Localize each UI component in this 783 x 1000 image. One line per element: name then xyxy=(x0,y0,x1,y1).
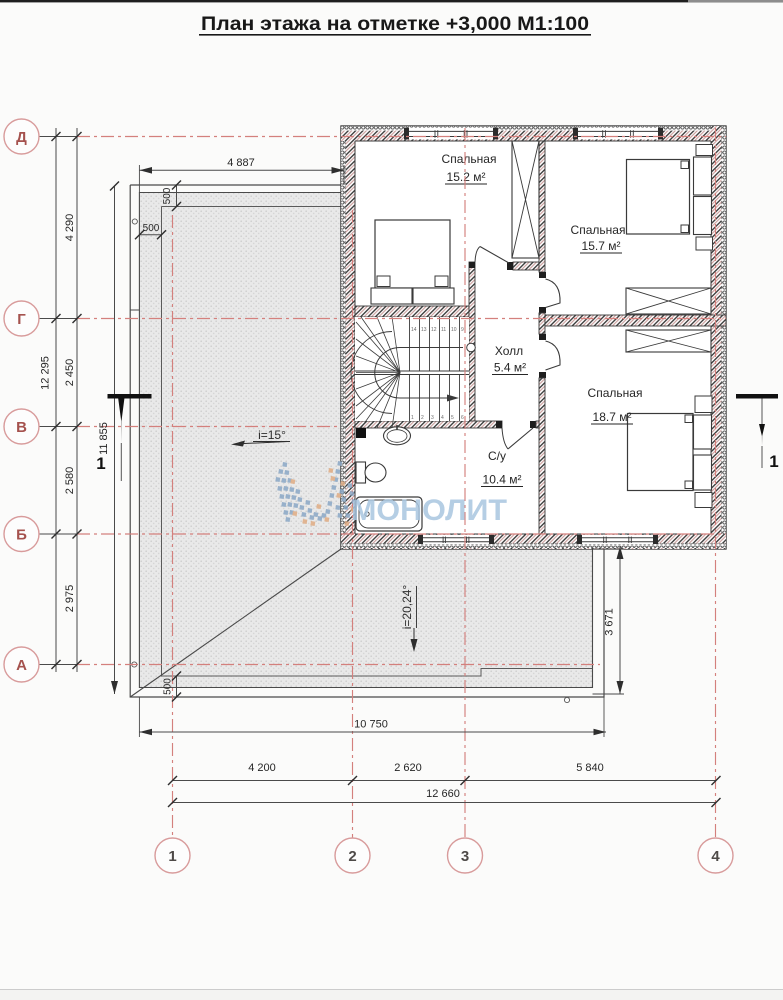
svg-text:В: В xyxy=(16,419,27,436)
svg-text:Спальная: Спальная xyxy=(588,386,643,400)
svg-text:11 855: 11 855 xyxy=(98,422,110,455)
svg-text:Спальная: Спальная xyxy=(442,152,497,166)
svg-text:1: 1 xyxy=(411,415,414,421)
svg-text:2 620: 2 620 xyxy=(394,762,422,774)
svg-text:10 750: 10 750 xyxy=(354,719,388,731)
svg-text:12: 12 xyxy=(431,327,437,333)
svg-text:10: 10 xyxy=(451,327,457,333)
svg-text:4: 4 xyxy=(441,415,444,421)
svg-text:План этажа на отметке +3,000 М: План этажа на отметке +3,000 М1:100 xyxy=(201,13,589,35)
svg-text:4: 4 xyxy=(711,848,720,865)
svg-text:1: 1 xyxy=(96,454,105,473)
svg-text:2 975: 2 975 xyxy=(64,585,76,613)
svg-text:18.7 м²: 18.7 м² xyxy=(593,410,632,424)
svg-text:А: А xyxy=(16,657,27,674)
svg-text:2: 2 xyxy=(421,415,424,421)
svg-text:i=20,24°: i=20,24° xyxy=(400,585,414,630)
svg-text:Спальная: Спальная xyxy=(571,223,626,237)
svg-text:500: 500 xyxy=(162,187,173,204)
svg-text:15.2 м²: 15.2 м² xyxy=(447,170,486,184)
svg-text:11: 11 xyxy=(441,327,446,333)
svg-text:6: 6 xyxy=(461,415,464,421)
svg-text:1: 1 xyxy=(168,848,176,865)
svg-text:12 295: 12 295 xyxy=(40,356,52,390)
svg-text:Б: Б xyxy=(16,527,27,544)
svg-text:Холл: Холл xyxy=(495,344,523,358)
svg-text:13: 13 xyxy=(421,327,427,333)
svg-text:С/у: С/у xyxy=(488,449,506,463)
svg-text:5 840: 5 840 xyxy=(576,762,604,774)
svg-text:5: 5 xyxy=(451,415,454,421)
svg-text:14: 14 xyxy=(411,327,417,333)
svg-text:9: 9 xyxy=(461,327,464,333)
svg-text:4 887: 4 887 xyxy=(227,157,255,169)
svg-text:5.4 м²: 5.4 м² xyxy=(494,361,526,375)
svg-text:Д: Д xyxy=(16,129,27,146)
svg-text:4 200: 4 200 xyxy=(248,762,276,774)
svg-text:2: 2 xyxy=(348,848,356,865)
svg-text:12 660: 12 660 xyxy=(426,788,460,800)
svg-text:2 580: 2 580 xyxy=(64,467,76,495)
svg-text:i=15°: i=15° xyxy=(258,428,286,442)
svg-text:1: 1 xyxy=(769,452,778,471)
svg-text:500: 500 xyxy=(143,223,160,234)
svg-text:500: 500 xyxy=(163,678,174,695)
svg-text:МОНОЛИТ: МОНОЛИТ xyxy=(351,494,507,527)
svg-text:Г: Г xyxy=(17,311,26,328)
svg-text:2 450: 2 450 xyxy=(64,359,76,387)
svg-text:3 671: 3 671 xyxy=(604,608,616,636)
svg-text:3: 3 xyxy=(461,848,469,865)
svg-text:3: 3 xyxy=(431,415,434,421)
svg-text:4 290: 4 290 xyxy=(64,214,76,242)
svg-text:15.7 м²: 15.7 м² xyxy=(582,239,621,253)
svg-text:10.4 м²: 10.4 м² xyxy=(483,473,522,487)
